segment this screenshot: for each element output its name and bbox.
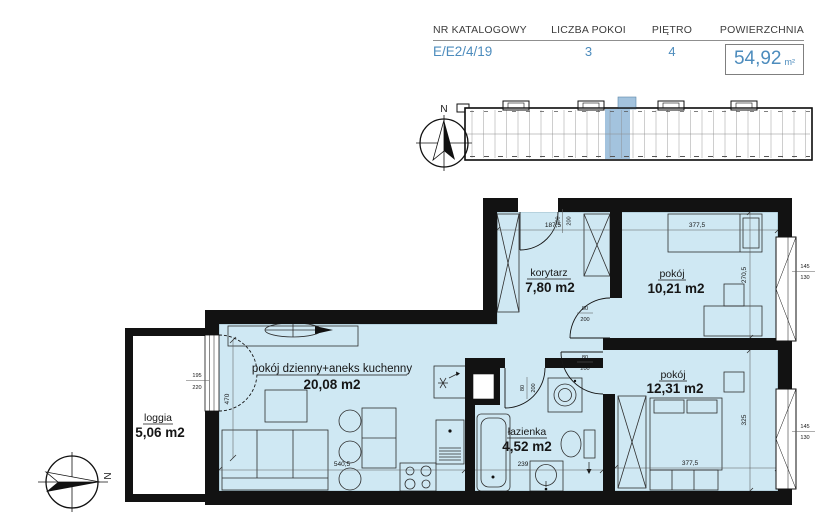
room-label-loggia: loggia 5,06 m2 bbox=[135, 412, 185, 440]
svg-text:130: 130 bbox=[800, 275, 809, 281]
svg-text:łazienka: łazienka bbox=[508, 426, 547, 438]
north-compass-bottom: N bbox=[38, 452, 112, 512]
svg-text:80: 80 bbox=[582, 306, 588, 312]
dim-room-top-width: 377,5 bbox=[689, 222, 706, 229]
svg-text:pokój dzienny+aneks kuchenny: pokój dzienny+aneks kuchenny bbox=[252, 363, 412, 375]
compass-needle bbox=[444, 120, 455, 160]
dim-bathroom-width: 239 bbox=[518, 461, 529, 468]
svg-text:220: 220 bbox=[192, 385, 201, 391]
svg-text:korytarz: korytarz bbox=[530, 267, 567, 279]
room-label-bathroom: łazienka 4,52 m2 bbox=[502, 426, 552, 454]
svg-text:7,80 m2: 7,80 m2 bbox=[525, 280, 575, 295]
window-bottom bbox=[776, 389, 796, 489]
dim-room-bottom-height: 325 bbox=[741, 414, 748, 425]
floor-plan-page: NR KATALOGOWY LICZBA POKOI PIĘTRO POWIER… bbox=[0, 0, 819, 514]
dim-living-height: 470 bbox=[224, 393, 231, 404]
svg-text:200: 200 bbox=[567, 216, 573, 225]
north-compass-top: N bbox=[416, 104, 472, 171]
svg-text:145: 145 bbox=[800, 264, 809, 270]
svg-text:200: 200 bbox=[580, 366, 589, 372]
svg-text:10,21 m2: 10,21 m2 bbox=[647, 281, 704, 296]
svg-text:130: 130 bbox=[800, 435, 809, 441]
svg-text:5,06 m2: 5,06 m2 bbox=[135, 425, 185, 440]
svg-text:200: 200 bbox=[580, 317, 589, 323]
svg-text:200: 200 bbox=[531, 383, 537, 392]
svg-text:145: 145 bbox=[800, 424, 809, 430]
room-label-korytarz: korytarz 7,80 m2 bbox=[525, 267, 575, 295]
dim-room-top-height: 270,5 bbox=[741, 266, 748, 283]
window-top bbox=[776, 237, 796, 341]
apartment-interior bbox=[219, 212, 778, 491]
north-letter: N bbox=[101, 472, 112, 479]
compass-needle bbox=[46, 482, 100, 492]
floor-plan-drawing: N N bbox=[0, 0, 819, 514]
svg-text:4,52 m2: 4,52 m2 bbox=[502, 439, 552, 454]
north-letter: N bbox=[440, 104, 447, 115]
svg-text:80: 80 bbox=[582, 355, 588, 361]
svg-text:195: 195 bbox=[192, 373, 201, 379]
svg-text:20,08 m2: 20,08 m2 bbox=[303, 377, 360, 392]
svg-text:loggia: loggia bbox=[144, 412, 172, 424]
highlighted-unit-top bbox=[618, 97, 636, 109]
svg-text:pokój: pokój bbox=[660, 369, 685, 381]
svg-text:100: 100 bbox=[556, 216, 562, 225]
svg-text:12,31 m2: 12,31 m2 bbox=[646, 381, 703, 396]
svg-text:80: 80 bbox=[520, 385, 526, 391]
dim-room-bottom-width: 377,5 bbox=[682, 460, 699, 467]
building-locator-map bbox=[457, 97, 812, 160]
svg-text:pokój: pokój bbox=[659, 268, 684, 280]
dim-living-width: 540,5 bbox=[334, 461, 351, 468]
